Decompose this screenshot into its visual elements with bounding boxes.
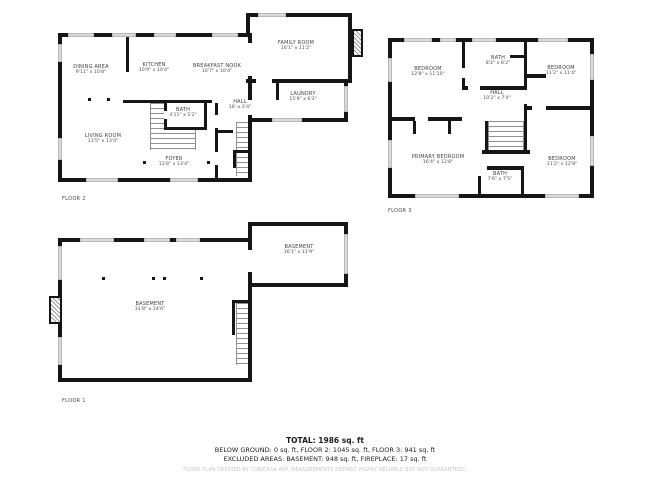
- wall-segment: [123, 100, 212, 103]
- support-column: [152, 277, 155, 280]
- wall-segment: [524, 42, 527, 90]
- wall-segment: [246, 79, 256, 83]
- window-marker: [545, 194, 579, 198]
- room-dims: 11'2" x 12'8": [547, 162, 578, 168]
- wall-segment: [527, 106, 532, 110]
- wall-segment: [248, 115, 252, 182]
- window-marker: [272, 118, 302, 122]
- wall-segment: [58, 378, 252, 382]
- window-marker: [344, 234, 348, 274]
- support-column: [143, 161, 146, 164]
- window-marker: [58, 246, 62, 280]
- window-marker: [590, 136, 594, 166]
- window-marker: [258, 13, 286, 17]
- support-column: [107, 98, 110, 101]
- wall-segment: [521, 166, 524, 198]
- room-label-kitchen: KITCHEN 10'9" x 10'4": [139, 62, 170, 74]
- wall-segment: [232, 300, 235, 335]
- room-label-laundry: LAUNDRY 15'9" x 6'3": [289, 91, 317, 103]
- wall-segment: [252, 283, 348, 287]
- total-area-text: TOTAL: 1986 sq. ft: [0, 436, 650, 445]
- wall-segment: [233, 150, 236, 168]
- wall-segment: [462, 86, 468, 90]
- wall-segment: [218, 130, 233, 133]
- room-label-hall: HALL 16' x 3'4": [229, 99, 251, 111]
- room-label-basement-main: BASEMENT 31'8" x 24'6": [135, 301, 166, 313]
- floor-label-3: FLOOR 3: [388, 208, 412, 214]
- window-marker: [154, 33, 176, 37]
- area-summary: TOTAL: 1986 sq. ft BELOW GROUND: 0 sq. f…: [0, 436, 650, 473]
- wall-segment: [126, 37, 129, 72]
- wall-segment: [388, 117, 415, 121]
- room-dims: 31'8" x 24'6": [135, 307, 166, 313]
- wall-segment: [448, 121, 451, 134]
- support-column: [102, 277, 105, 280]
- wall-segment: [462, 42, 465, 68]
- wall-segment: [215, 165, 218, 182]
- room-label-basement-wing: BASEMENT 16'1" x 11'9": [284, 244, 315, 256]
- wall-segment: [276, 83, 279, 100]
- room-label-bedroom-3: BEDROOM 11'2" x 12'8": [547, 156, 578, 168]
- window-marker: [538, 38, 568, 42]
- wall-segment: [164, 127, 207, 130]
- room-dims: 10'7" x 10'4": [193, 69, 241, 75]
- room-dims: 15'9" x 6'3": [289, 97, 317, 103]
- support-column: [88, 98, 91, 101]
- window-marker: [58, 138, 62, 160]
- floor-label-1: FLOOR 1: [62, 398, 86, 404]
- window-marker: [58, 44, 62, 62]
- room-label-dining-area: DINING AREA 9'11" x 10'8": [73, 64, 108, 76]
- fireplace: [49, 296, 62, 324]
- window-marker: [388, 58, 392, 82]
- room-label-bath-lower: BATH 7'6" x 7'5": [488, 171, 513, 183]
- wall-segment: [413, 121, 416, 134]
- window-marker: [80, 238, 114, 242]
- window-marker: [440, 38, 456, 42]
- wall-segment: [248, 272, 252, 382]
- room-dims: 8'2" x 8'2": [486, 61, 511, 67]
- wall-segment: [272, 79, 352, 83]
- wall-segment: [246, 13, 250, 37]
- floor-plan-page: DINING AREA 9'11" x 10'8" KITCHEN 10'9" …: [0, 0, 650, 487]
- support-column: [163, 277, 166, 280]
- wall-segment: [546, 106, 594, 110]
- wall-segment: [428, 117, 462, 121]
- wall-segment: [524, 104, 527, 153]
- room-label-foyer: FOYER 12'8" x 13'4": [159, 156, 190, 168]
- window-marker: [472, 38, 496, 42]
- room-label-primary-bedroom: PRIMARY BEDROOM 16'4" x 12'8": [412, 154, 465, 166]
- room-dims: 16'4" x 12'8": [412, 160, 465, 166]
- support-column: [207, 161, 210, 164]
- room-dims: 16'1" x 11'2": [278, 46, 314, 52]
- window-marker: [144, 238, 170, 242]
- room-dims: 10'2" x 7'4": [483, 96, 511, 102]
- room-dims: 4'11" x 5'2": [169, 113, 197, 119]
- wall-segment: [204, 103, 207, 130]
- window-marker: [68, 33, 94, 37]
- room-label-family-room: FAMILY ROOM 16'1" x 11'2": [278, 40, 314, 52]
- room-dims: 9'11" x 10'8": [73, 70, 108, 76]
- wall-segment: [510, 55, 527, 58]
- floor-areas-text: BELOW GROUND: 0 sq. ft, FLOOR 2: 1045 sq…: [0, 446, 650, 454]
- wall-segment: [164, 103, 167, 111]
- window-marker: [112, 33, 136, 37]
- support-column: [200, 277, 203, 280]
- wall-segment: [250, 222, 348, 226]
- room-dims: 11'2" x 11'4": [546, 71, 577, 77]
- room-dims: 16'1" x 11'9": [284, 250, 315, 256]
- window-marker: [404, 38, 432, 42]
- wall-segment: [485, 121, 488, 153]
- room-label-bath: BATH 4'11" x 5'2": [169, 107, 197, 119]
- window-marker: [590, 54, 594, 80]
- window-marker: [86, 178, 118, 182]
- room-label-breakfast-nook: BREAKFAST NOOK 10'7" x 10'4": [193, 63, 241, 75]
- wall-segment: [232, 300, 252, 303]
- room-dims: 10'9" x 10'4": [139, 68, 170, 74]
- window-marker: [344, 86, 348, 112]
- room-label-bath-upper: BATH 8'2" x 8'2": [486, 55, 511, 67]
- room-label-living-room: LIVING ROOM 13'5" x 13'4": [85, 133, 121, 145]
- wall-segment: [478, 176, 481, 198]
- floor-label-2: FLOOR 2: [62, 196, 86, 202]
- disclaimer-text: FLOOR PLAN CREATED BY CUBICASA APP. MEAS…: [0, 468, 650, 473]
- room-label-bedroom-2: BEDROOM 11'2" x 11'4": [546, 65, 577, 77]
- room-dims: 13'5" x 13'4": [85, 139, 121, 145]
- window-marker: [388, 140, 392, 168]
- wall-segment: [527, 74, 546, 78]
- room-dims: 16' x 3'4": [229, 105, 251, 111]
- room-dims: 7'6" x 7'5": [488, 177, 513, 183]
- staircase: [488, 121, 524, 150]
- room-label-bedroom-1: BEDROOM 12'8" x 11'10": [411, 66, 445, 78]
- window-marker: [212, 33, 238, 37]
- wall-segment: [215, 103, 218, 115]
- wall-segment: [482, 150, 530, 154]
- fireplace: [352, 29, 363, 57]
- room-dims: 12'8" x 13'4": [159, 162, 190, 168]
- wall-segment: [487, 166, 524, 170]
- wall-segment: [248, 238, 252, 250]
- window-marker: [170, 178, 198, 182]
- window-marker: [58, 337, 62, 365]
- room-dims: 12'8" x 11'10": [411, 72, 445, 78]
- window-marker: [415, 194, 459, 198]
- room-label-hall-3: HALL 10'2" x 7'4": [483, 90, 511, 102]
- excluded-areas-text: EXCLUDED AREAS: BASEMENT: 948 sq. ft, FI…: [0, 455, 650, 463]
- window-marker: [176, 238, 200, 242]
